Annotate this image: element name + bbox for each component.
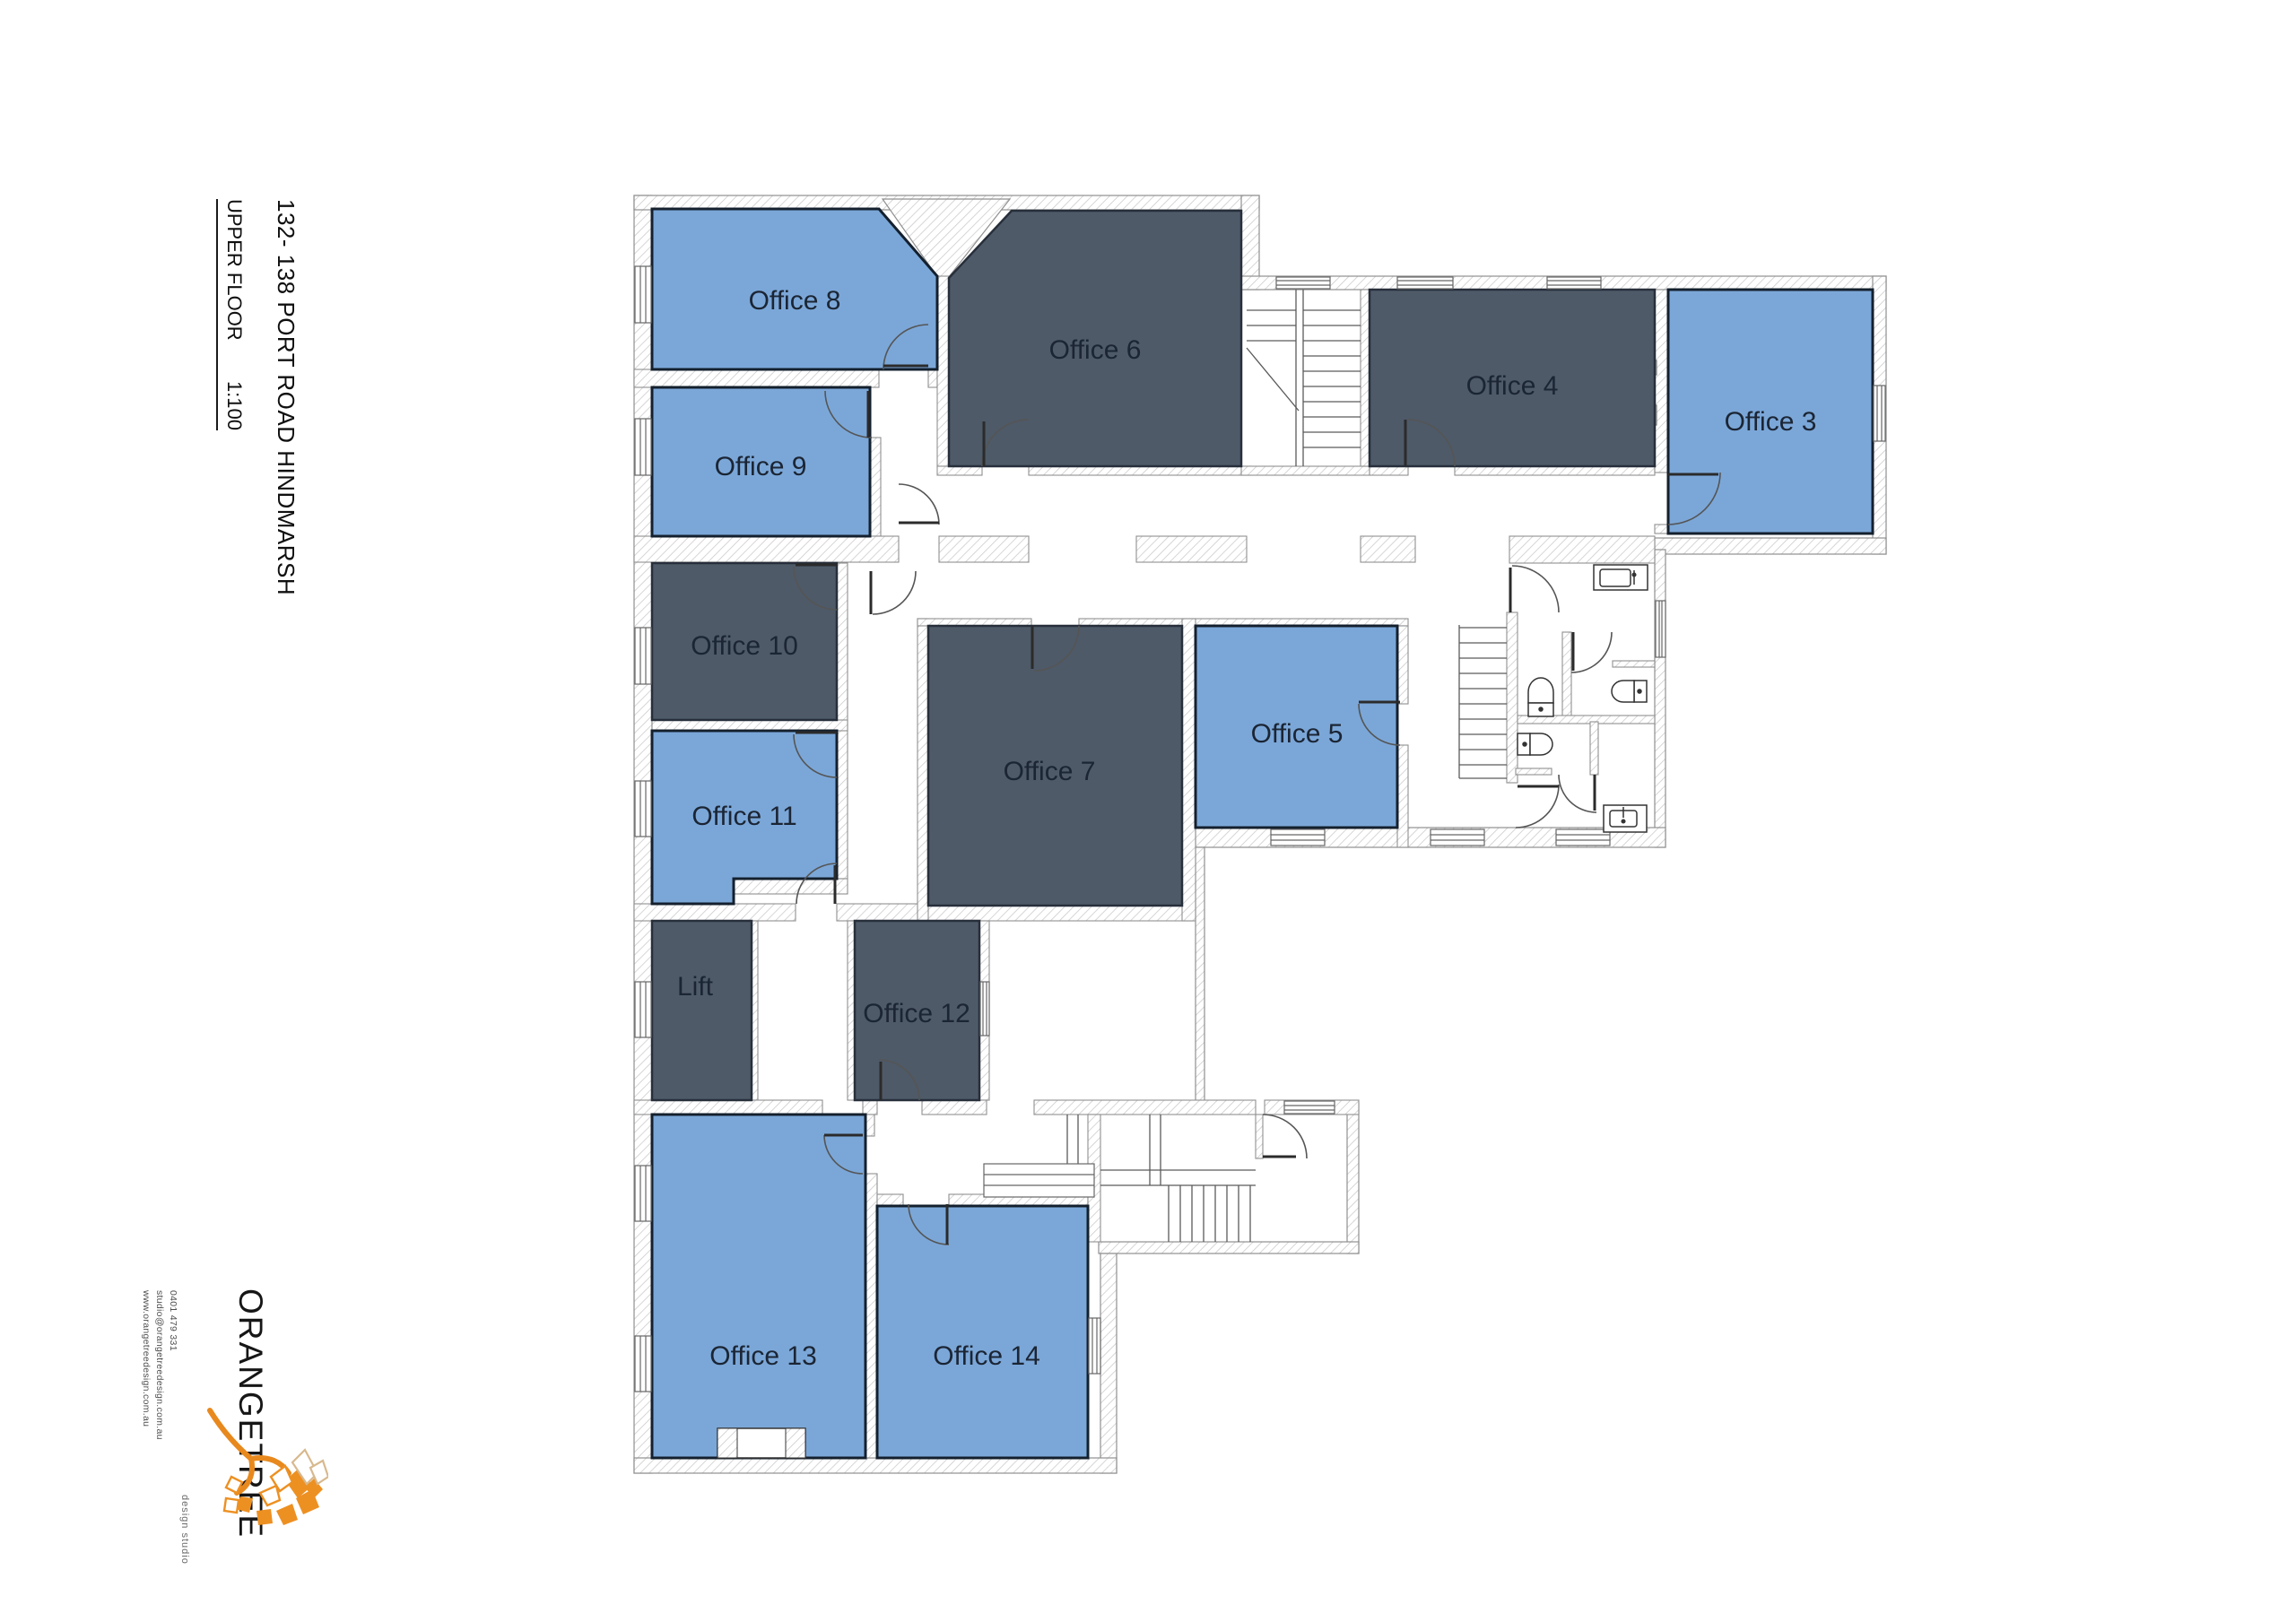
window-north-3 (1547, 277, 1601, 289)
floor-plan: Office 8 Office 6 Office 9 Office 4 Offi… (0, 0, 2296, 1622)
door-hall-north (899, 484, 939, 525)
logo-phone: 0401 479 331 (168, 1290, 178, 1351)
room-office-13-label: Office 13 (709, 1341, 817, 1371)
fireplace-office13 (717, 1428, 805, 1458)
window-south-1 (1271, 829, 1325, 846)
room-office-13-area (652, 1115, 865, 1458)
sink-top (1594, 565, 1648, 590)
room-office-5-label: Office 5 (1251, 719, 1344, 749)
logo-block: ORANGETREE design studio 0401 479 331 st… (123, 1288, 316, 1544)
bathroom-fixtures (1518, 565, 1648, 832)
window-office3-east (1874, 386, 1885, 441)
room-office-7: Office 7 (928, 626, 1182, 906)
window-west-7 (635, 1336, 651, 1392)
door-corridor-junction (871, 571, 916, 614)
stair-balustrade (984, 1164, 1094, 1197)
stairs-top (1247, 290, 1361, 466)
room-office-10: Office 10 (652, 563, 837, 720)
toilet-2 (1612, 681, 1647, 702)
room-office-14: Office 14 (877, 1206, 1088, 1458)
room-lift-area (652, 921, 752, 1100)
room-lift: Lift (652, 921, 752, 1100)
room-office-6-label: Office 6 (1049, 335, 1142, 365)
window-south-2 (1431, 829, 1484, 846)
door-bathroom-entry (1510, 566, 1559, 612)
room-office-14-area (877, 1206, 1088, 1458)
floor-name: UPPER FLOOR (222, 199, 246, 341)
room-office-6: Office 6 (949, 211, 1241, 466)
door-wc-stall (1571, 632, 1612, 672)
window-west-3 (635, 628, 651, 684)
room-office-13: Office 13 (652, 1115, 865, 1458)
room-office-4-label: Office 4 (1466, 371, 1559, 401)
logo-email: studio@orangetreedesign.com.au (154, 1290, 165, 1440)
door-bathroom-south (1516, 785, 1559, 828)
scale-value: 1:100 (222, 381, 246, 430)
room-office-10-label: Office 10 (691, 631, 798, 661)
room-office-3: Office 3 (1668, 290, 1873, 533)
stairs-middle (1459, 625, 1507, 778)
room-office-5: Office 5 (1196, 626, 1397, 828)
room-office-8: Office 8 (652, 209, 937, 369)
window-south-3 (1556, 829, 1610, 846)
window-stairwing-north (1284, 1101, 1335, 1114)
room-office-12: Office 12 (855, 921, 979, 1100)
window-bathroom-east (1656, 601, 1665, 657)
room-office-12-label: Office 12 (863, 999, 970, 1028)
logo-website: www.orangetreedesign.com.au (141, 1290, 152, 1427)
window-west-1 (635, 266, 651, 323)
window-north-2 (1397, 277, 1453, 289)
plan-title-address: 132- 138 PORT ROAD HINDMARSH (272, 199, 300, 576)
door-bathroom-southeast (1559, 775, 1596, 812)
room-office-14-label: Office 14 (933, 1341, 1040, 1371)
room-office-9-label: Office 9 (715, 452, 807, 481)
window-west-5 (635, 982, 651, 1037)
window-office12-east (980, 982, 989, 1036)
toilet-3 (1518, 733, 1552, 755)
window-north-1 (1276, 277, 1330, 289)
window-west-6 (635, 1166, 651, 1221)
window-west-4 (635, 781, 651, 837)
window-west-2 (635, 419, 651, 475)
plan-title-floor: UPPER FLOOR 1:100 (216, 199, 246, 430)
room-office-4: Office 4 (1370, 290, 1655, 466)
room-office-3-label: Office 3 (1725, 407, 1817, 437)
room-office-11-label: Office 11 (691, 802, 796, 831)
window-office14-east (1089, 1318, 1100, 1374)
sink-bottom (1604, 805, 1647, 832)
toilet-1 (1528, 678, 1553, 716)
room-office-8-label: Office 8 (749, 286, 841, 316)
room-lift-label: Lift (677, 972, 714, 1002)
room-office-7-label: Office 7 (1004, 757, 1096, 786)
orange-tree-icon (185, 1403, 328, 1538)
room-office-11: Office 11 (652, 731, 837, 904)
room-office-9: Office 9 (652, 387, 870, 536)
door-stair-wing (1263, 1115, 1307, 1158)
